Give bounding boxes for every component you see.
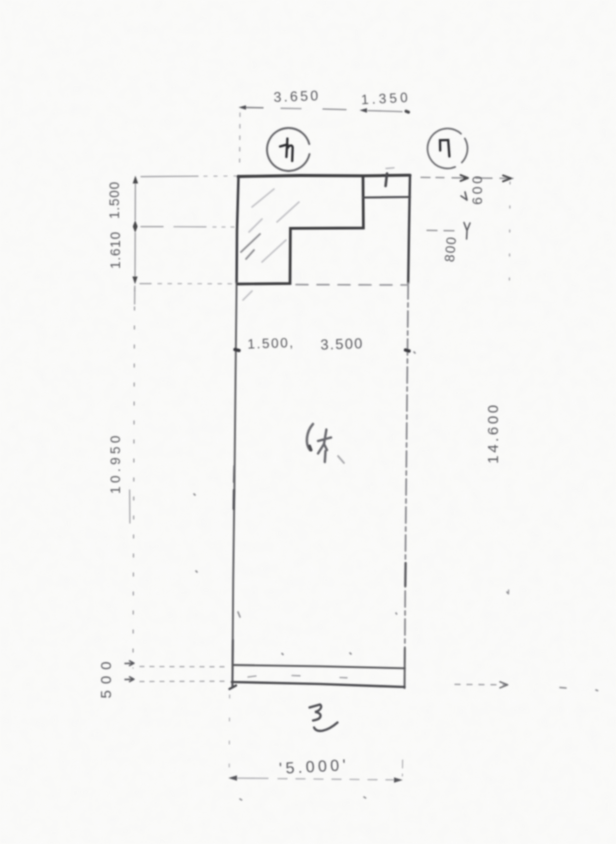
svg-text:1.350: 1.350 bbox=[361, 90, 412, 108]
svg-text:14.600: 14.600 bbox=[485, 402, 502, 463]
svg-text:10.950: 10.950 bbox=[108, 432, 123, 494]
svg-text:3.500: 3.500 bbox=[320, 336, 364, 354]
svg-text:1.610: 1.610 bbox=[108, 231, 123, 269]
svg-text:1.500,: 1.500, bbox=[247, 335, 295, 352]
svg-text:800: 800 bbox=[442, 235, 459, 262]
svg-text:600: 600 bbox=[469, 173, 485, 205]
svg-text:3.650: 3.650 bbox=[273, 87, 321, 105]
svg-text:500: 500 bbox=[98, 655, 115, 698]
svg-text:1.500: 1.500 bbox=[107, 181, 122, 219]
